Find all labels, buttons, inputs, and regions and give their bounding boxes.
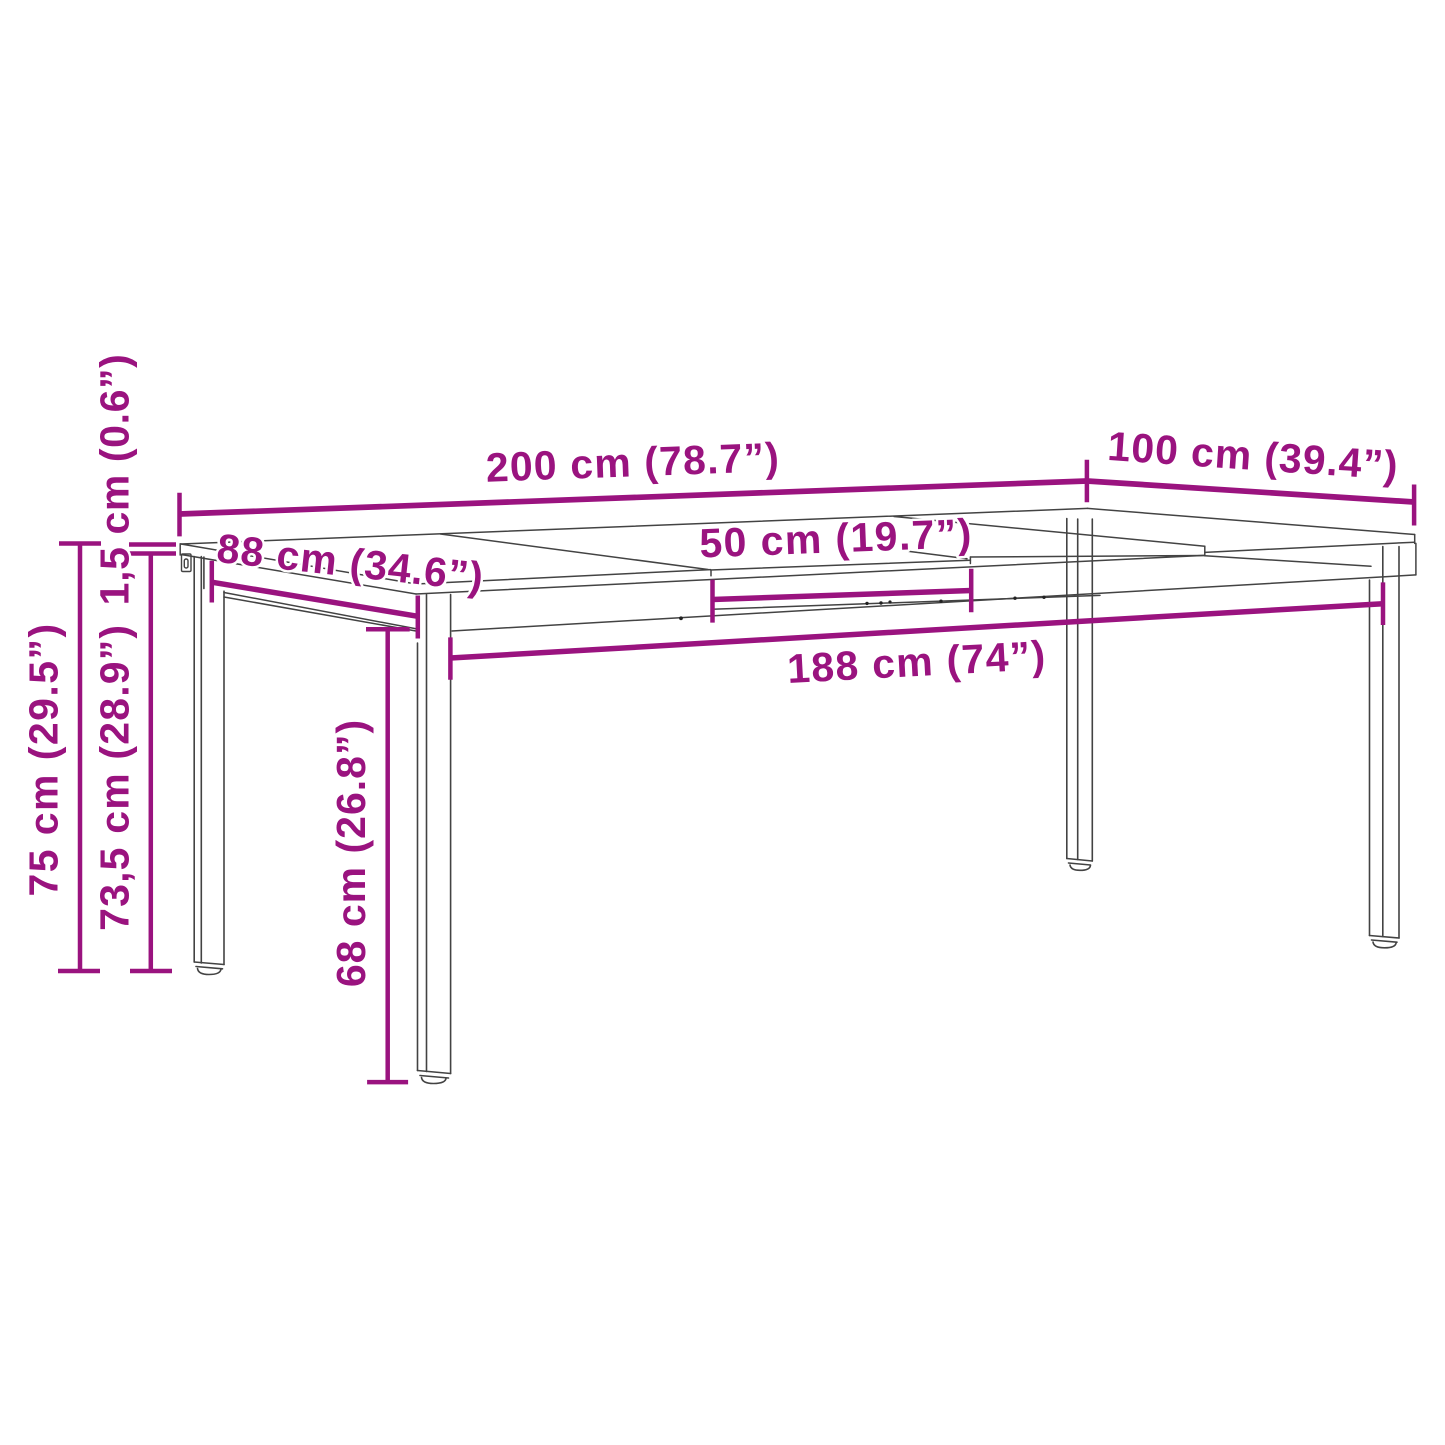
svg-text:73,5 cm (28.9”): 73,5 cm (28.9”) <box>92 624 138 931</box>
svg-text:68 cm (26.8”): 68 cm (26.8”) <box>328 719 374 987</box>
svg-text:1,5 cm (0.6”): 1,5 cm (0.6”) <box>92 354 138 606</box>
svg-text:75 cm (29.5”): 75 cm (29.5”) <box>21 622 67 896</box>
